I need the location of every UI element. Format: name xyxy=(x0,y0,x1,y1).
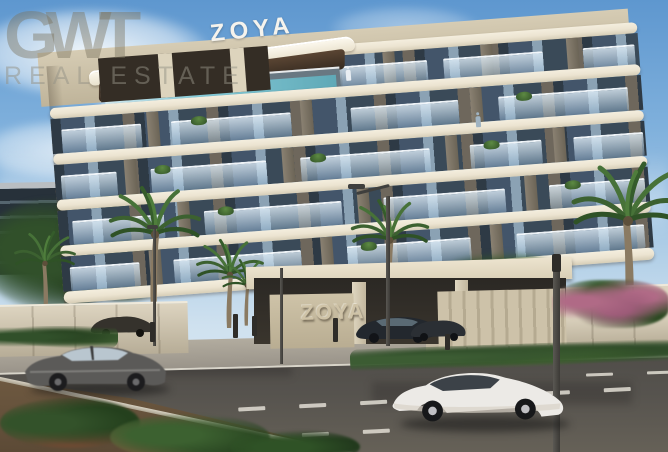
bougainvillea-bush xyxy=(553,280,668,328)
bollard-light xyxy=(252,316,257,336)
facade-pier xyxy=(552,127,567,163)
facade-pier xyxy=(300,100,315,136)
bollard-light xyxy=(333,318,338,342)
street-lamp-head xyxy=(147,225,158,229)
balcony-person xyxy=(346,70,352,81)
street-lamp-pole xyxy=(280,268,283,364)
balcony-person xyxy=(475,116,481,127)
bollard-light xyxy=(445,334,450,350)
facade-pier xyxy=(281,147,296,183)
parked-car-driveway xyxy=(408,316,468,342)
bollard-light xyxy=(233,314,238,338)
street-lamp-cap xyxy=(552,254,561,272)
facade-pier xyxy=(445,135,460,171)
street-lamp-pole xyxy=(386,196,390,346)
property-photo: ZOYA ZOYA xyxy=(0,0,668,452)
street-lamp-head xyxy=(348,184,365,189)
grey-sedan xyxy=(20,334,170,394)
white-sports-car xyxy=(388,352,568,432)
facade-pier xyxy=(524,175,539,211)
facade-pier xyxy=(146,111,161,147)
palm-tree xyxy=(12,230,78,312)
